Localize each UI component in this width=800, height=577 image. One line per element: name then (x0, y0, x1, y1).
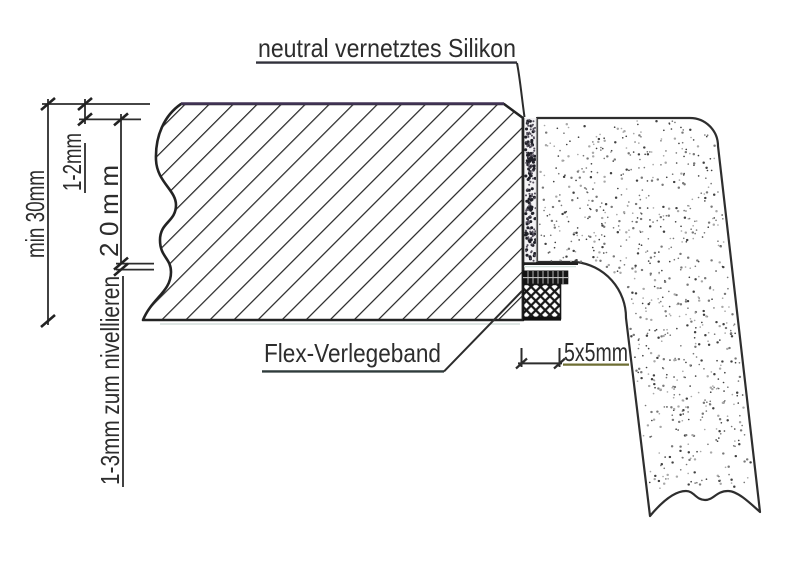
svg-text:min 30mm: min 30mm (20, 170, 50, 258)
svg-text:1-3mm zum nivellieren: 1-3mm zum nivellieren (95, 276, 125, 485)
svg-text:5x5mm: 5x5mm (564, 337, 628, 367)
svg-text:neutral vernetztes Silikon: neutral vernetztes Silikon (258, 33, 516, 63)
svg-text:20mm: 20mm (94, 165, 124, 257)
svg-text:1-2mm: 1-2mm (57, 133, 87, 191)
svg-text:Flex-Verlegeband: Flex-Verlegeband (264, 338, 441, 368)
